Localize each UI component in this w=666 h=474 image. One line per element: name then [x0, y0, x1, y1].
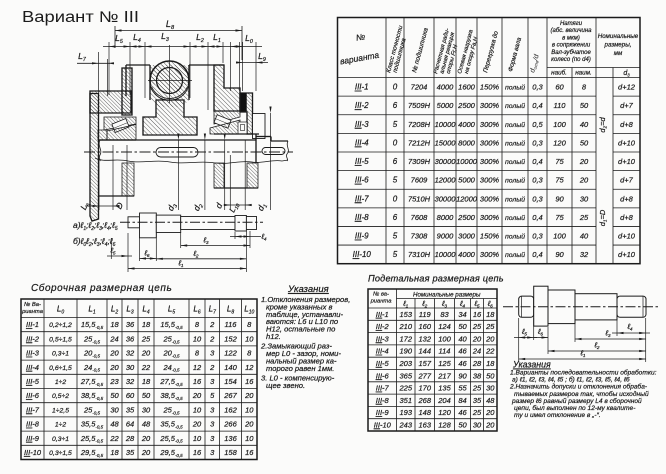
svg-text:№ подшипника: № подшипника [410, 27, 430, 74]
svg-text:300%: 300% [480, 213, 500, 222]
svg-text:ℓ4​: ℓ4​ [626, 322, 632, 332]
svg-text:III-1: III-1 [355, 83, 369, 92]
svg-text:267: 267 [223, 391, 237, 400]
svg-text:0,3: 0,3 [532, 232, 543, 241]
svg-text:25-0,5: 25-0,5 [162, 334, 180, 344]
svg-text:L0​: L0​ [245, 33, 253, 45]
svg-text:35: 35 [126, 448, 135, 457]
svg-text:10: 10 [193, 334, 202, 343]
svg-text:217: 217 [437, 371, 451, 380]
svg-text:36: 36 [126, 320, 135, 329]
svg-text:тываемых размеров так, чтобы и: тываемых размеров так, чтобы исходный [514, 390, 649, 398]
svg-text:20: 20 [141, 349, 151, 358]
svg-text:114: 114 [439, 347, 451, 356]
svg-text:25: 25 [472, 322, 482, 331]
svg-text:122: 122 [224, 349, 237, 358]
svg-text:L5​: L5​ [168, 305, 175, 316]
svg-text:0,4: 0,4 [532, 101, 542, 110]
svg-text:колесо (по d4): колесо (по d4) [551, 57, 591, 63]
svg-text:225: 225 [398, 384, 412, 393]
svg-text:полый: полый [505, 84, 525, 92]
svg-text:0,3: 0,3 [532, 194, 543, 203]
svg-text:8: 8 [247, 349, 252, 358]
svg-text:23: 23 [109, 377, 119, 386]
svg-text:128: 128 [438, 420, 451, 429]
svg-text:ℓ2​: ℓ2​ [421, 299, 427, 309]
svg-text:27,5-0,5: 27,5-0,5 [159, 377, 183, 387]
svg-text:24: 24 [109, 334, 118, 343]
svg-text:24: 24 [472, 347, 481, 356]
svg-text:III-7: III-7 [26, 405, 40, 414]
svg-text:35,5-0,5: 35,5-0,5 [81, 420, 104, 430]
svg-text:d+8: d+8 [620, 194, 634, 203]
svg-text:5: 5 [210, 391, 215, 400]
svg-text:d+12: d+12 [618, 83, 636, 92]
svg-text:158: 158 [224, 448, 237, 457]
svg-text:50: 50 [458, 420, 467, 429]
svg-text:100: 100 [553, 120, 566, 129]
svg-text:32: 32 [126, 377, 135, 386]
svg-text:204: 204 [437, 396, 451, 405]
svg-text:Указания: Указания [287, 284, 329, 295]
svg-text:щее звено.: щее звено. [266, 381, 305, 390]
svg-text:25-0,5: 25-0,5 [83, 405, 101, 415]
svg-text:7309Н: 7309Н [408, 157, 431, 166]
svg-text:20: 20 [244, 391, 254, 400]
svg-text:124: 124 [438, 322, 451, 331]
svg-text:22: 22 [141, 363, 151, 372]
svg-text:0,5÷1,5: 0,5÷1,5 [49, 336, 72, 343]
svg-text:18: 18 [142, 377, 151, 386]
svg-text:III-4: III-4 [26, 363, 39, 372]
svg-text:ℓ6​: ℓ6​ [537, 327, 543, 337]
svg-text:30: 30 [473, 420, 482, 429]
svg-text:ℓ1​: ℓ1​ [177, 259, 183, 269]
svg-text:28: 28 [472, 359, 482, 368]
svg-text:10: 10 [245, 334, 254, 343]
svg-text:25: 25 [472, 408, 482, 417]
svg-text:25: 25 [141, 334, 151, 343]
svg-text:d1​=D: d1​=D [598, 209, 608, 226]
svg-text:148: 148 [418, 408, 431, 417]
svg-text:35: 35 [126, 405, 135, 414]
svg-text:7509Н: 7509Н [408, 101, 431, 110]
svg-text:Перегрузка до: Перегрузка до [481, 30, 500, 74]
svg-text:144: 144 [418, 347, 431, 356]
svg-text:№ ва-: № ва- [373, 292, 389, 298]
svg-text:d3​: d3​ [623, 70, 630, 78]
svg-text:8000: 8000 [458, 138, 476, 147]
svg-text:III-7: III-7 [376, 384, 390, 393]
svg-text:цепи, был выполнен по 12-му кв: цепи, был выполнен по 12-му квалите- [514, 404, 636, 412]
svg-text:29,5-0,5: 29,5-0,5 [159, 448, 183, 458]
svg-text:0: 0 [393, 194, 398, 203]
svg-text:100: 100 [438, 334, 451, 343]
svg-text:300%: 300% [480, 138, 500, 147]
svg-text:140: 140 [224, 363, 237, 372]
svg-text:8: 8 [582, 83, 587, 92]
svg-text:132: 132 [418, 334, 431, 343]
svg-text:III-8: III-8 [26, 420, 40, 429]
svg-text:L10​: L10​ [228, 201, 242, 215]
svg-text:150%: 150% [480, 232, 500, 241]
svg-text:300%: 300% [480, 194, 500, 203]
svg-text:ℓ6​: ℓ6​ [143, 249, 149, 259]
svg-text:300%: 300% [480, 250, 500, 259]
svg-text:20: 20 [192, 391, 202, 400]
svg-text:0,4: 0,4 [532, 213, 542, 222]
svg-text:136: 136 [224, 434, 237, 443]
svg-text:50: 50 [580, 138, 589, 147]
svg-text:12: 12 [193, 363, 202, 372]
svg-text:полый: полый [505, 121, 525, 129]
svg-text:8: 8 [195, 349, 200, 358]
svg-text:наим.: наим. [575, 70, 592, 77]
svg-text:38,5-0,5: 38,5-0,5 [160, 391, 183, 401]
svg-text:№: № [355, 31, 366, 42]
svg-text:162: 162 [224, 405, 237, 414]
svg-text:полый: полый [505, 233, 525, 241]
svg-text:III-6: III-6 [26, 391, 40, 400]
svg-text:торого равен 1мм.: торого равен 1мм. [266, 364, 334, 373]
svg-text:154: 154 [224, 377, 237, 386]
svg-text:в мкм): в мкм) [562, 35, 580, 41]
svg-text:Подетальная размерная цепь: Подетальная размерная цепь [368, 274, 504, 284]
svg-text:а)ℓ1​;ℓ2​;ℓ3​;ℓ4​;ℓ5​: а)ℓ1​;ℓ2​;ℓ3​;ℓ4​;ℓ5​ [73, 220, 118, 232]
svg-text:L3​: L3​ [126, 305, 133, 316]
svg-text:40: 40 [580, 120, 589, 129]
svg-text:15,5-0,5: 15,5-0,5 [160, 320, 183, 330]
svg-text:0,3÷1: 0,3÷1 [52, 436, 69, 443]
svg-text:L2​: L2​ [196, 32, 204, 44]
svg-text:203: 203 [398, 359, 412, 368]
svg-text:20: 20 [579, 157, 589, 166]
svg-text:50: 50 [142, 391, 151, 400]
svg-text:193: 193 [399, 408, 412, 417]
svg-text:190: 190 [399, 347, 412, 356]
svg-text:ℓ1​: ℓ1​ [579, 349, 585, 359]
svg-text:20: 20 [485, 408, 495, 417]
svg-text:ℓ6​: ℓ6​ [487, 299, 493, 309]
svg-text:dотв​/d: dотв​/d [529, 53, 541, 74]
svg-text:40: 40 [458, 334, 467, 343]
svg-text:172: 172 [399, 334, 412, 343]
svg-text:3: 3 [210, 434, 215, 443]
svg-text:20-0,5: 20-0,5 [83, 349, 101, 359]
svg-text:III-5: III-5 [376, 359, 390, 368]
svg-text:полый: полый [505, 177, 525, 185]
svg-text:0,4: 0,4 [532, 157, 542, 166]
svg-text:d1​: d1​ [255, 201, 269, 213]
svg-text:7212Н: 7212Н [408, 138, 431, 147]
svg-text:1÷2,5: 1÷2,5 [52, 407, 69, 414]
svg-text:75: 75 [555, 157, 564, 166]
svg-text:в сопряжении: в сопряжении [552, 43, 591, 49]
svg-text:III-2: III-2 [26, 334, 40, 343]
svg-text:III-6: III-6 [355, 176, 369, 185]
svg-text:(абс. величина: (абс. величина [551, 28, 593, 34]
svg-text:2: 2 [209, 320, 215, 329]
svg-text:полый: полый [505, 251, 525, 259]
svg-text:24-0,5: 24-0,5 [83, 363, 101, 373]
svg-text:90: 90 [555, 250, 564, 259]
svg-text:5: 5 [393, 176, 398, 185]
svg-text:10000: 10000 [456, 157, 478, 166]
svg-text:5: 5 [393, 120, 398, 129]
svg-text:116: 116 [225, 320, 238, 329]
svg-text:12000: 12000 [456, 194, 478, 203]
svg-text:L3​: L3​ [161, 31, 169, 43]
svg-text:25: 25 [579, 213, 589, 222]
svg-text:90: 90 [555, 194, 564, 203]
svg-text:размер ℓ6 равный размеру L4 в: размер ℓ6 равный размеру L4 в сборочной [511, 397, 642, 405]
svg-text:наиб.: наиб. [551, 69, 567, 77]
svg-text:ℓ2​: ℓ2​ [192, 249, 198, 259]
svg-text:III-9: III-9 [26, 434, 40, 443]
svg-text:III-1: III-1 [376, 310, 389, 319]
svg-text:20: 20 [244, 420, 254, 429]
svg-text:III-2: III-2 [355, 101, 369, 110]
svg-text:L6​: L6​ [193, 305, 200, 316]
svg-text:L7​: L7​ [209, 305, 216, 316]
svg-text:277: 277 [417, 371, 431, 380]
svg-text:2500: 2500 [457, 213, 476, 222]
svg-text:25-0,5: 25-0,5 [162, 405, 180, 415]
svg-text:L10​: L10​ [244, 305, 254, 316]
svg-text:ℓ1​: ℓ1​ [402, 299, 408, 309]
svg-text:135: 135 [438, 384, 451, 393]
svg-text:48: 48 [110, 420, 119, 429]
svg-text:18: 18 [142, 320, 151, 329]
svg-text:119: 119 [419, 310, 432, 319]
svg-text:Сборочная размерная цепь: Сборочная размерная цепь [31, 282, 172, 294]
svg-text:46: 46 [458, 359, 467, 368]
svg-text:243: 243 [398, 420, 412, 429]
svg-text:50: 50 [458, 322, 467, 331]
svg-text:10: 10 [245, 405, 254, 414]
svg-text:Натяги: Натяги [560, 21, 583, 27]
svg-text:35: 35 [473, 396, 482, 405]
svg-text:5: 5 [393, 232, 398, 241]
svg-text:полый: полый [505, 102, 525, 110]
svg-text:III-10: III-10 [374, 420, 392, 429]
svg-text:Вал-зубчатое: Вал-зубчатое [551, 50, 591, 56]
svg-text:12: 12 [245, 363, 254, 372]
svg-text:ℓ3​: ℓ3​ [202, 236, 208, 246]
svg-text:150%: 150% [480, 83, 500, 92]
svg-text:25,5-0,5: 25,5-0,5 [159, 434, 183, 444]
svg-text:38,5-0,5: 38,5-0,5 [81, 391, 104, 401]
svg-text:163: 163 [418, 420, 431, 429]
svg-text:III-8: III-8 [376, 396, 390, 405]
svg-text:ℓ3​: ℓ3​ [604, 329, 610, 339]
svg-text:L9​: L9​ [258, 51, 266, 63]
svg-text:18: 18 [486, 310, 495, 319]
svg-text:5: 5 [393, 250, 398, 259]
svg-text:20: 20 [472, 334, 482, 343]
svg-text:50: 50 [110, 391, 119, 400]
svg-text:L4​: L4​ [142, 305, 149, 316]
svg-text:L0​: L0​ [57, 305, 64, 316]
svg-text:30: 30 [580, 194, 589, 203]
svg-text:300%: 300% [480, 157, 500, 166]
svg-text:125: 125 [438, 359, 451, 368]
svg-text:III-10: III-10 [24, 448, 42, 457]
svg-text:18: 18 [486, 359, 495, 368]
svg-text:8: 8 [247, 320, 252, 329]
svg-text:ℓ3​: ℓ3​ [441, 299, 447, 309]
svg-text:7608: 7608 [411, 213, 429, 222]
svg-text:7208Н: 7208Н [408, 120, 431, 129]
svg-text:10000: 10000 [435, 120, 457, 129]
svg-text:3: 3 [210, 420, 215, 429]
svg-text:15000: 15000 [435, 138, 457, 147]
svg-text:III-5: III-5 [355, 157, 369, 166]
svg-text:25: 25 [472, 384, 482, 393]
svg-text:0,6÷1,5: 0,6÷1,5 [49, 365, 72, 372]
svg-text:III-6: III-6 [376, 371, 390, 380]
svg-text:б)ℓ0​ℓ2​;ℓ3​;ℓ4​;ℓ6​: б)ℓ0​ℓ2​;ℓ3​;ℓ4​;ℓ6​ [73, 236, 116, 248]
svg-text:полый: полый [505, 214, 525, 222]
svg-text:III-4: III-4 [376, 347, 389, 356]
svg-text:20: 20 [141, 448, 151, 457]
svg-text:30: 30 [110, 405, 119, 414]
svg-text:III-7: III-7 [355, 194, 369, 203]
svg-text:полый: полый [505, 195, 525, 203]
svg-text:d+10: d+10 [618, 250, 636, 259]
svg-text:0,3: 0,3 [532, 176, 543, 185]
svg-text:L1​: L1​ [213, 32, 221, 44]
svg-text:266: 266 [223, 420, 237, 429]
svg-text:5000: 5000 [437, 101, 455, 110]
svg-text:10000: 10000 [435, 250, 457, 259]
svg-text:0,3÷1,5: 0,3÷1,5 [49, 450, 72, 457]
svg-text:d+10: d+10 [618, 232, 636, 241]
svg-text:полый: полый [505, 158, 525, 166]
svg-text:L1​: L1​ [88, 305, 95, 316]
svg-text:20-0,5: 20-0,5 [162, 349, 180, 359]
svg-text:Указания: Указания [512, 360, 551, 370]
svg-text:27,5-0,5: 27,5-0,5 [80, 377, 104, 387]
svg-text:170: 170 [418, 384, 431, 393]
svg-text:110: 110 [554, 101, 567, 110]
svg-text:25,5-0,5: 25,5-0,5 [80, 434, 104, 444]
svg-text:30: 30 [142, 405, 151, 414]
svg-text:46: 46 [458, 408, 467, 417]
svg-text:46: 46 [458, 347, 467, 356]
svg-text:7308: 7308 [411, 232, 429, 241]
svg-text:III-2: III-2 [376, 322, 390, 331]
svg-text:40: 40 [580, 232, 589, 241]
svg-text:Номинальные: Номинальные [598, 33, 639, 40]
svg-text:ℓ2​: ℓ2​ [593, 341, 599, 351]
svg-text:83: 83 [440, 310, 449, 319]
svg-text:L8​: L8​ [166, 19, 175, 31]
svg-text:50: 50 [580, 101, 589, 110]
svg-text:22: 22 [485, 347, 495, 356]
svg-text:120: 120 [438, 408, 451, 417]
svg-text:1600: 1600 [458, 83, 476, 92]
svg-text:55: 55 [458, 384, 467, 393]
svg-text:10: 10 [245, 434, 254, 443]
svg-text:100: 100 [553, 232, 566, 241]
svg-text:L4​: L4​ [133, 32, 141, 44]
svg-text:153: 153 [399, 310, 412, 319]
svg-text:22: 22 [109, 434, 119, 443]
svg-text:20: 20 [109, 349, 119, 358]
svg-text:рианта: рианта [370, 299, 393, 305]
svg-text:60: 60 [126, 391, 135, 400]
svg-text:2: 2 [209, 363, 215, 372]
svg-text:20: 20 [485, 420, 495, 429]
svg-text:7204: 7204 [411, 83, 428, 92]
svg-text:ℓ5​: ℓ5​ [521, 327, 527, 337]
svg-text:d+7: d+7 [620, 101, 634, 110]
svg-text:7310Н: 7310Н [408, 250, 431, 259]
svg-text:351: 351 [399, 396, 412, 405]
svg-text:4000: 4000 [458, 120, 476, 129]
svg-text:L2​: L2​ [111, 305, 118, 316]
svg-text:24-0,5: 24-0,5 [162, 363, 180, 373]
svg-text:0,2÷1,2: 0,2÷1,2 [49, 322, 72, 329]
svg-text:3: 3 [210, 377, 215, 386]
svg-text:32: 32 [580, 250, 589, 259]
svg-text:34: 34 [458, 310, 466, 319]
svg-text:L5​: L5​ [115, 33, 123, 45]
svg-text:3: 3 [210, 405, 215, 414]
svg-text:Номинальные размеры: Номинальные размеры [413, 292, 481, 299]
svg-text:30: 30 [486, 384, 495, 393]
svg-text:d: d [213, 201, 224, 210]
svg-text:84: 84 [458, 396, 466, 405]
svg-text:d2​: d2​ [191, 201, 205, 213]
svg-text:6: 6 [393, 157, 398, 166]
svg-text:0,5÷2: 0,5÷2 [52, 393, 69, 400]
svg-text:0,3: 0,3 [532, 138, 543, 147]
svg-text:3000: 3000 [458, 232, 476, 241]
svg-text:d+8: d+8 [620, 213, 634, 222]
svg-text:4000: 4000 [437, 83, 455, 92]
svg-text:157: 157 [418, 359, 431, 368]
svg-text:0,3: 0,3 [532, 83, 543, 92]
svg-text:D: D [113, 201, 125, 211]
svg-text:III-3: III-3 [376, 334, 390, 343]
svg-text:16: 16 [193, 448, 202, 457]
svg-text:ℓ4​: ℓ4​ [459, 299, 465, 309]
svg-text:32: 32 [126, 349, 135, 358]
svg-text:210: 210 [398, 322, 412, 331]
svg-text:0,5: 0,5 [532, 120, 543, 129]
svg-text:3: 3 [210, 349, 215, 358]
svg-text:4000: 4000 [458, 250, 476, 259]
svg-text:18: 18 [110, 320, 119, 329]
svg-text:20: 20 [485, 334, 495, 343]
svg-text:30000: 30000 [435, 157, 457, 166]
svg-text:25-0,5: 25-0,5 [83, 334, 101, 344]
svg-text:300%: 300% [480, 120, 500, 129]
svg-text:8000: 8000 [437, 213, 455, 222]
svg-text:III-9: III-9 [376, 408, 390, 417]
svg-text:20: 20 [109, 363, 119, 372]
svg-text:2.Назначить допуски и откло: 2.Назначить допуски и отклонения обраба- [509, 383, 648, 391]
svg-text:ℓ4​: ℓ4​ [260, 232, 266, 242]
svg-text:268: 268 [417, 396, 431, 405]
svg-text:300%: 300% [480, 101, 500, 110]
svg-text:20: 20 [579, 176, 589, 185]
svg-text:рианта: рианта [21, 309, 44, 315]
svg-text:2: 2 [209, 334, 215, 343]
svg-text:варианта: варианта [339, 50, 380, 67]
